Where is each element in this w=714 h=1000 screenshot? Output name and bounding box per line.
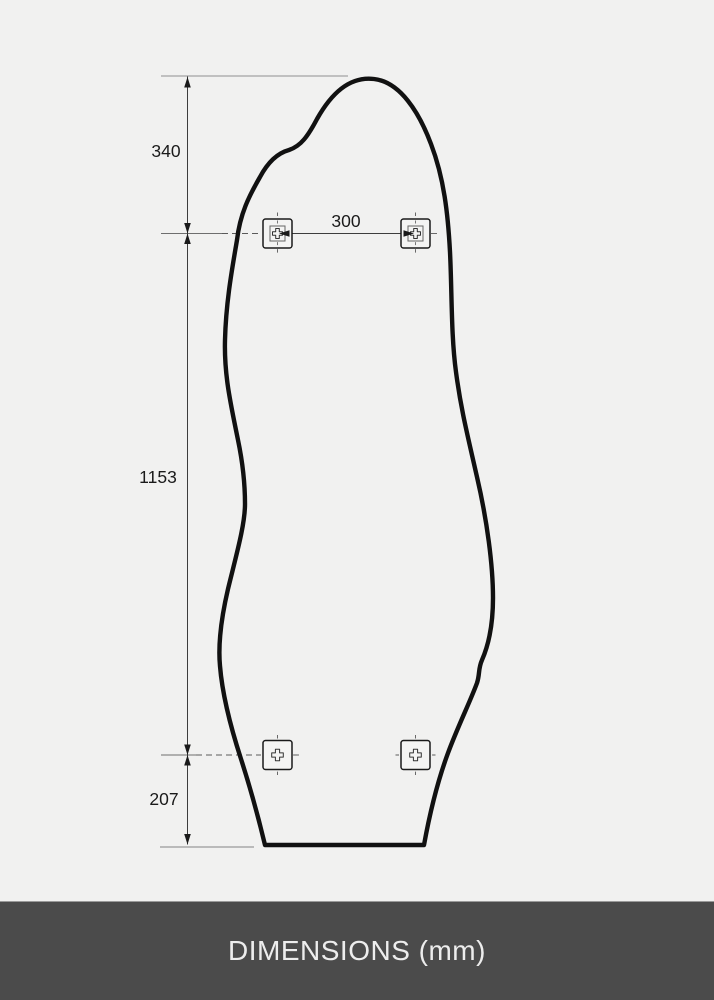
mounting-bracket-bottom-right [396, 735, 436, 775]
page: 340 300 1153 207 DIMENSIONS (mm) [0, 0, 714, 1000]
footer-title: DIMENSIONS (mm) [228, 935, 486, 967]
mounting-bracket-bottom-left [258, 735, 298, 775]
dimension-label-bottom: 207 [149, 789, 178, 809]
dimension-label-middle: 1153 [139, 467, 177, 487]
footer-bar: DIMENSIONS (mm) [0, 901, 714, 1000]
dimension-arrowheads [184, 77, 414, 845]
diagram-svg: 340 300 1153 207 [0, 0, 714, 901]
dimension-label-top: 340 [151, 141, 180, 161]
center-lines [196, 234, 440, 756]
dimension-label-bracket-spacing: 300 [331, 211, 360, 231]
mirror-outline [219, 79, 493, 845]
dimension-diagram: 340 300 1153 207 [0, 0, 714, 901]
